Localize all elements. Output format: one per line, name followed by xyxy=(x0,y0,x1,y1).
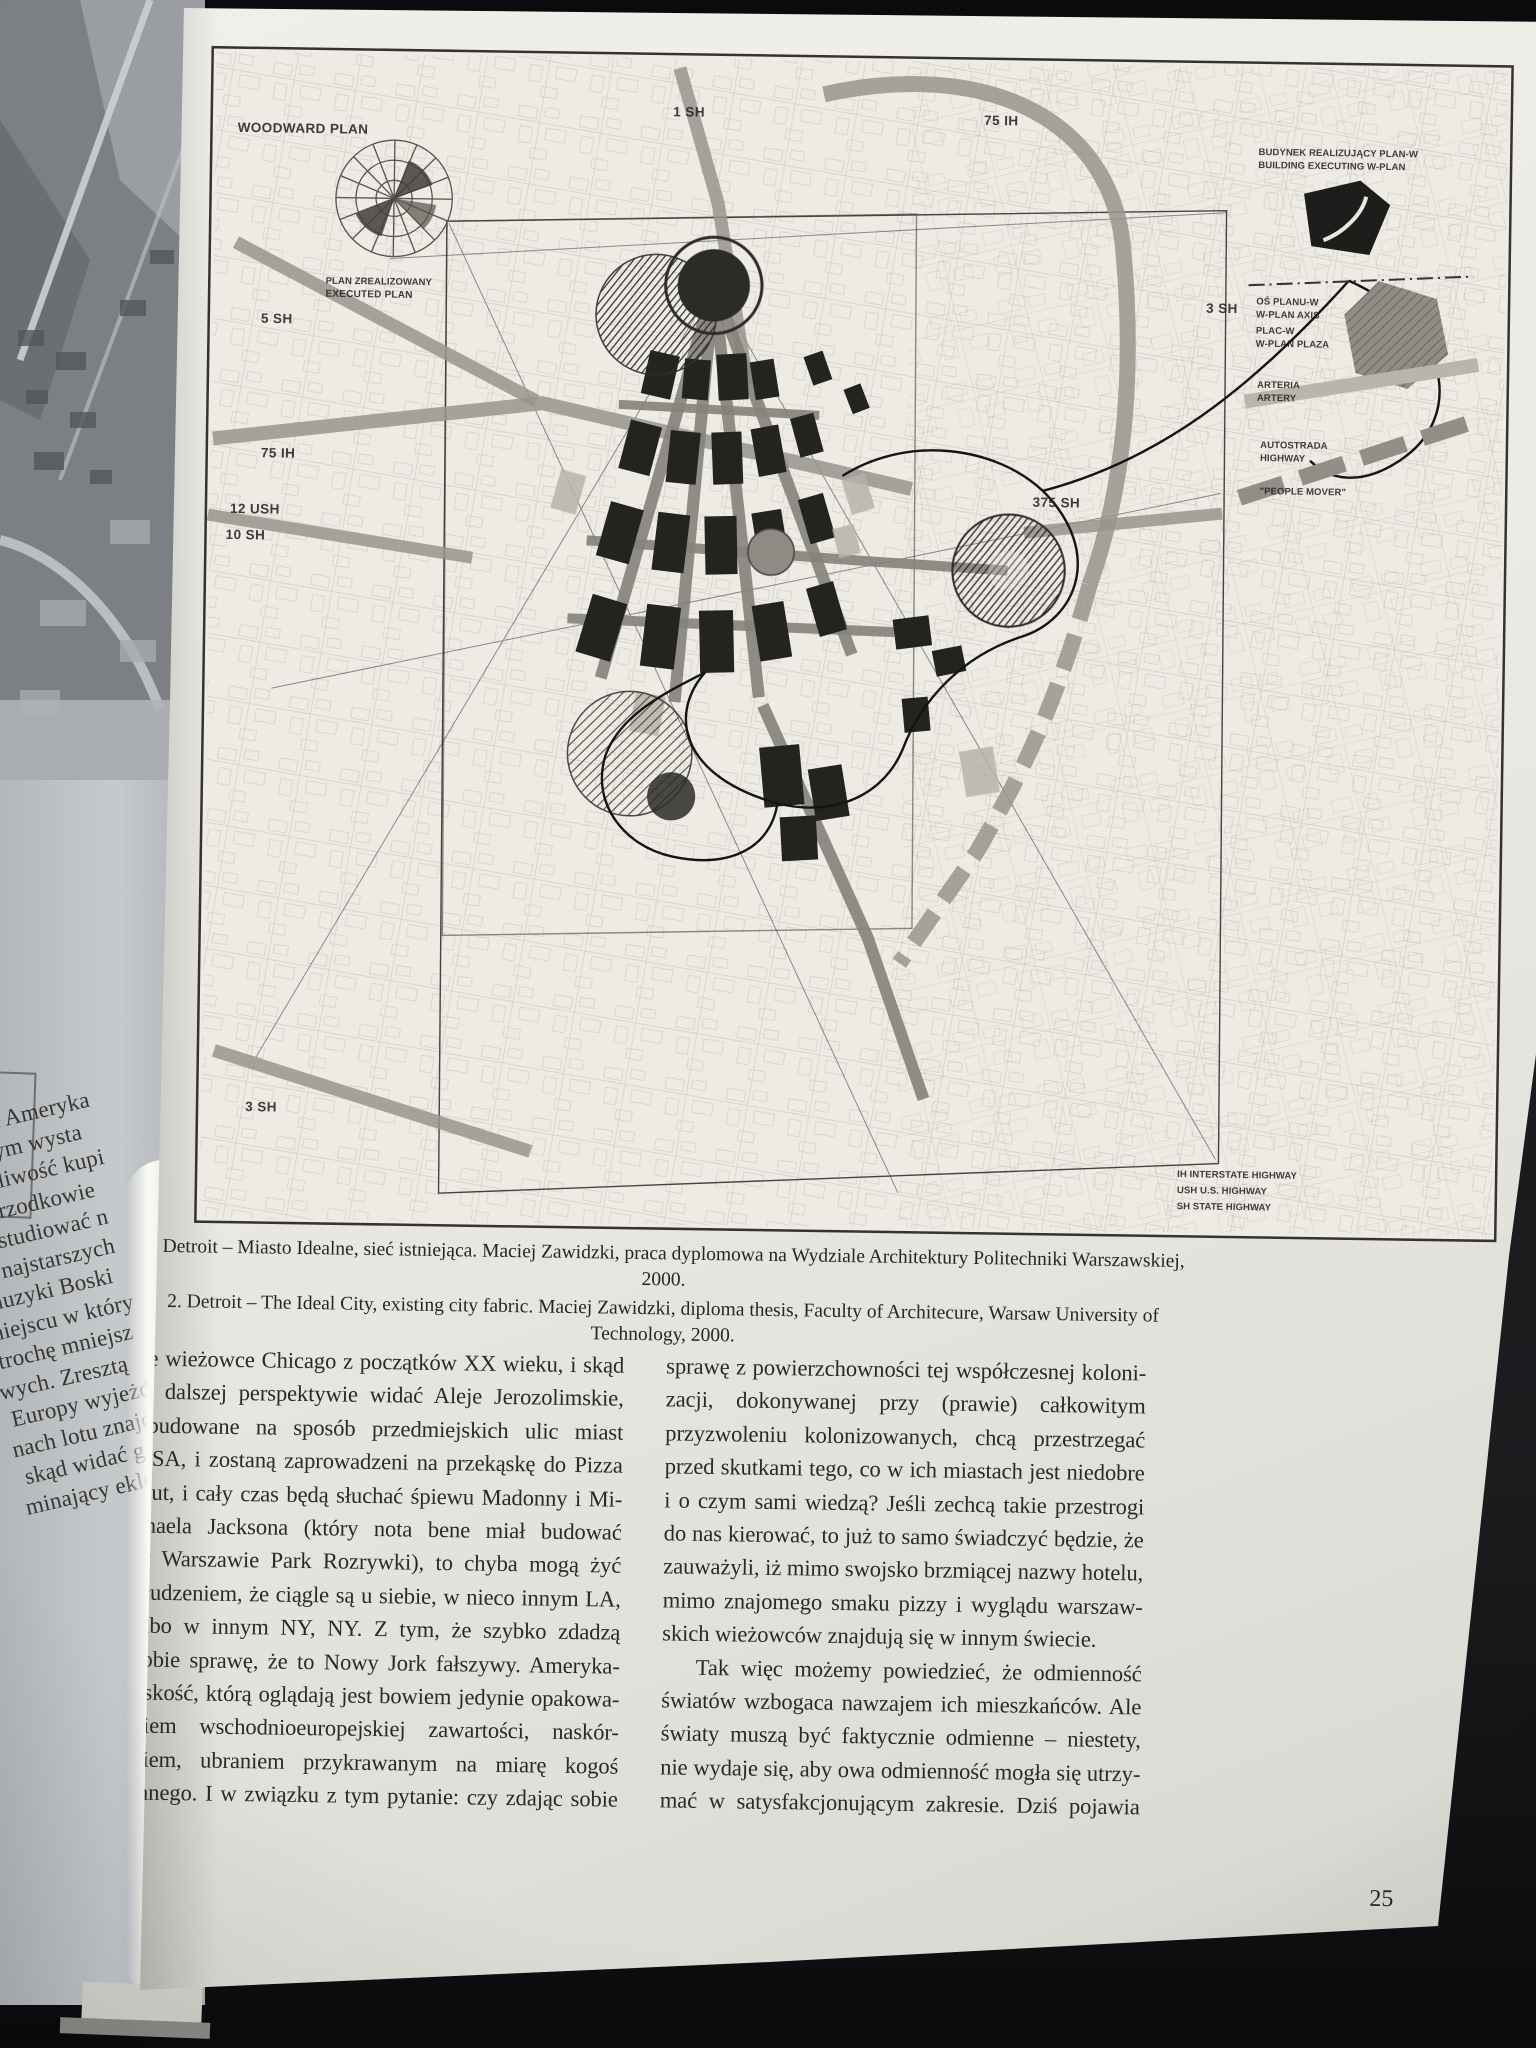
journal-page: WOODWARD PLAN 1 SH 75 IH PLAN ZREALIZOWA… xyxy=(130,0,1536,2012)
map-label-1sh: 1 SH xyxy=(673,104,705,119)
legend-highway-en: HIGHWAY xyxy=(1260,453,1306,465)
body-column-left: ne wieżowce Chicago z początków XX wieku… xyxy=(131,1342,625,1817)
key-interstate-highway: IH INTERSTATE HIGHWAY xyxy=(1177,1169,1298,1182)
legend-square-en: W-PLAN PLAZA xyxy=(1256,339,1330,351)
map-label-10sh: 10 SH xyxy=(225,527,265,543)
map-label-75ih-left: 75 IH xyxy=(261,445,296,461)
map-label-375sh: 375 SH xyxy=(1033,495,1081,511)
woodward-wheel-park xyxy=(335,139,453,257)
map-label-12ush: 12 USH xyxy=(230,501,280,517)
map-label-3sh-bottom: 3 SH xyxy=(245,1099,277,1114)
map-label-5sh: 5 SH xyxy=(261,311,293,326)
map-label-75ih-top: 75 IH xyxy=(984,113,1019,129)
legend-artery-pl: ARTERIA xyxy=(1257,380,1300,392)
body-line: mać w satysfakcjonującym zakresie. Dziś … xyxy=(660,1783,1140,1824)
legend-axis-en: W-PLAN AXIS xyxy=(1256,309,1320,321)
page-number: 25 xyxy=(1369,1886,1393,1913)
legend-square-pl: PLAC-W xyxy=(1256,326,1295,338)
legend-building-en: BUILDING EXECUTING W-PLAN xyxy=(1258,160,1405,173)
detroit-plan-map: WOODWARD PLAN 1 SH 75 IH PLAN ZREALIZOWA… xyxy=(193,44,1514,1243)
key-state-highway: SH STATE HIGHWAY xyxy=(1177,1201,1272,1213)
city-plan-figure: WOODWARD PLAN 1 SH 75 IH PLAN ZREALIZOWA… xyxy=(193,44,1514,1243)
legend-people-mover-label: "PEOPLE MOVER" xyxy=(1259,486,1346,498)
map-label-3sh-right: 3 SH xyxy=(1206,301,1238,316)
legend-building-pl: BUDYNEK REALIZUJĄCY PLAN-W xyxy=(1258,147,1418,160)
book-photo: wnież Amerykaektórym wystamożliwość kupi… xyxy=(0,0,1536,2048)
legend-artery-en: ARTERY xyxy=(1257,393,1297,405)
legend-highway-pl: AUTOSTRADA xyxy=(1260,440,1328,452)
map-label-plan-executed-en: EXECUTED PLAN xyxy=(325,289,412,301)
map-label-woodward-plan: WOODWARD PLAN xyxy=(238,120,369,137)
figure-caption: 2. Detroit – Miasto Idealne, sieć istnie… xyxy=(140,1234,1188,1360)
body-column-right: sprawę z powierzchowności tej współczesn… xyxy=(660,1349,1147,1824)
map-label-plan-executed-pl: PLAN ZREALIZOWANY xyxy=(326,276,433,289)
key-us-highway: USH U.S. HIGHWAY xyxy=(1177,1185,1268,1197)
legend-axis-pl: OŚ PLANU-W xyxy=(1256,295,1318,308)
body-line: innego. I w związku z tym pytanie: czy z… xyxy=(131,1776,618,1817)
